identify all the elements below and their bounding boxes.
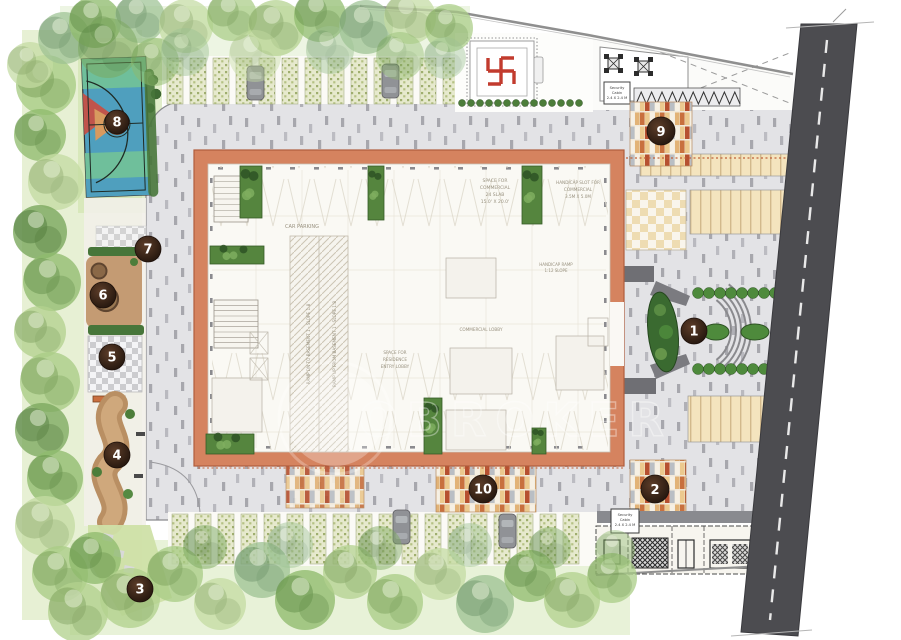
bench-icon — [136, 432, 145, 436]
marker-2: 2 — [641, 475, 669, 503]
tree-icon — [48, 582, 108, 640]
shrub-icon — [715, 288, 726, 299]
tree-icon — [448, 523, 492, 567]
entrance-opening — [610, 302, 624, 366]
marker-number: 5 — [107, 351, 116, 366]
oval-planter — [741, 324, 769, 340]
tree-icon — [14, 109, 66, 161]
shrub-icon — [540, 100, 547, 107]
shrub-icon — [504, 100, 511, 107]
tree-icon — [194, 578, 246, 630]
shrub-icon — [726, 288, 737, 299]
shrub-icon — [748, 364, 759, 375]
parking-stall — [310, 514, 326, 564]
security-cabin-label: 2.4 X 2.4 M — [615, 523, 635, 527]
label: COMMERCIAL — [480, 185, 511, 191]
plaza-checker — [626, 190, 686, 250]
label: ENTRY LOBBY — [381, 364, 410, 369]
label: RESIDENCE — [383, 357, 407, 362]
marker-number: 8 — [112, 116, 121, 131]
shrub-icon — [495, 100, 502, 107]
temple-door — [534, 57, 543, 83]
label: HANDICAP SLOT FOR — [556, 180, 600, 185]
tree-icon — [267, 522, 313, 568]
tree-icon — [595, 530, 635, 570]
security-cabin-label: Cabin — [620, 518, 630, 522]
label: HANDICAP RAMP — [539, 262, 573, 267]
transformer — [632, 538, 668, 568]
tree-icon — [306, 26, 354, 74]
car-icon — [499, 514, 516, 548]
shrub-icon — [130, 258, 138, 266]
marker-number: 6 — [98, 289, 107, 304]
tree-icon — [78, 18, 138, 78]
shrub-icon — [123, 489, 133, 499]
tree-icon — [376, 32, 424, 80]
shrub-icon — [513, 100, 520, 107]
parking-stall-band — [690, 190, 792, 234]
shrub-icon — [715, 364, 726, 375]
parking-stall — [213, 58, 229, 104]
tree-icon — [183, 525, 227, 569]
tree-icon — [229, 30, 281, 82]
marker-5: 5 — [99, 344, 125, 370]
tree-icon — [13, 205, 67, 259]
security-cabin-label: Security — [610, 86, 626, 90]
planter — [206, 433, 254, 454]
label: 3.5M X 5.0M — [565, 194, 591, 199]
marker-4: 4 — [104, 442, 130, 468]
shrub-icon — [477, 100, 484, 107]
marker-3: 3 — [127, 576, 153, 602]
marker-number: 7 — [143, 243, 152, 258]
shrub-icon — [125, 409, 135, 419]
tree-icon — [529, 527, 571, 569]
staircase — [214, 300, 258, 348]
planter — [522, 166, 542, 224]
watermark-text: NOBROKER — [311, 393, 673, 447]
label: 24 SLAB — [486, 192, 505, 198]
shrub-icon — [737, 364, 748, 375]
marker-10: 10 — [469, 475, 497, 503]
label: 1:12 SLOPE — [545, 268, 568, 273]
label: COMMERCIAL — [564, 187, 593, 192]
label-car-parking: CAR PARKING — [285, 224, 319, 230]
shrub-icon — [468, 100, 475, 107]
shrub-icon — [522, 100, 529, 107]
label: COMMERCIAL LOBBY — [459, 327, 502, 332]
shrub-icon — [567, 100, 574, 107]
shrub-icon — [549, 100, 556, 107]
label-ramp-down: RAMP DN TO BASEMENT 1 - SLOPE 1:8 — [306, 303, 311, 384]
shrub-icon — [558, 100, 565, 107]
tree-icon — [161, 28, 209, 76]
marker-1: 1 — [681, 318, 707, 344]
tree-icon — [14, 306, 66, 358]
marker-number: 4 — [112, 449, 121, 464]
shrub-icon — [737, 288, 748, 299]
planter — [240, 166, 262, 218]
tree-icon — [23, 253, 81, 311]
shrub-icon — [531, 100, 538, 107]
marker-number: 3 — [135, 583, 144, 598]
marker-number: 9 — [656, 125, 665, 140]
tree-icon — [28, 154, 84, 210]
shrub-icon — [759, 288, 770, 299]
marker-number: 2 — [650, 483, 659, 498]
shrub-icon — [748, 288, 759, 299]
label: SPACE FOR — [383, 350, 406, 355]
grating — [624, 378, 656, 394]
shrub-icon — [704, 364, 715, 375]
shrub-icon — [704, 288, 715, 299]
tree-icon — [358, 526, 402, 570]
security-cabin-label: Security — [618, 513, 634, 517]
shrub-icon — [693, 288, 704, 299]
shrub-icon — [486, 100, 493, 107]
marker-6: 6 — [90, 282, 116, 308]
shrub-icon — [726, 364, 737, 375]
bench-icon — [134, 474, 143, 478]
parking-stall — [351, 58, 367, 104]
tree-icon — [424, 37, 466, 79]
marker-number: 1 — [689, 325, 698, 340]
grating — [624, 266, 654, 282]
tree-icon — [367, 574, 423, 630]
security-cabin-label: 2.4 X 2.4 M — [607, 96, 627, 100]
shrub-icon — [576, 100, 583, 107]
tile-carpet — [286, 460, 364, 508]
shrub-icon — [459, 100, 466, 107]
marker-number: 10 — [474, 483, 492, 498]
site-plan-drawing: Security Cabin 2.4 X 2.4 M — [0, 0, 901, 640]
label: 15.0' X 20.0' — [481, 199, 509, 205]
parking-stall — [282, 58, 298, 104]
tree-icon — [15, 403, 69, 457]
hedge-strip — [88, 325, 144, 335]
label: SPACE FOR — [483, 178, 508, 184]
marker-7: 7 — [135, 236, 161, 262]
marker-8: 8 — [105, 110, 129, 134]
planter — [368, 166, 384, 220]
site-plan-canvas: Security Cabin 2.4 X 2.4 M — [0, 0, 901, 640]
security-cabin-label: Cabin — [612, 91, 622, 95]
planter — [210, 245, 264, 264]
tree-icon — [20, 352, 80, 412]
tree-ring-seat — [92, 264, 107, 279]
shrub-icon — [693, 364, 704, 375]
shrub-icon — [92, 467, 102, 477]
marker-9: 9 — [647, 117, 675, 145]
